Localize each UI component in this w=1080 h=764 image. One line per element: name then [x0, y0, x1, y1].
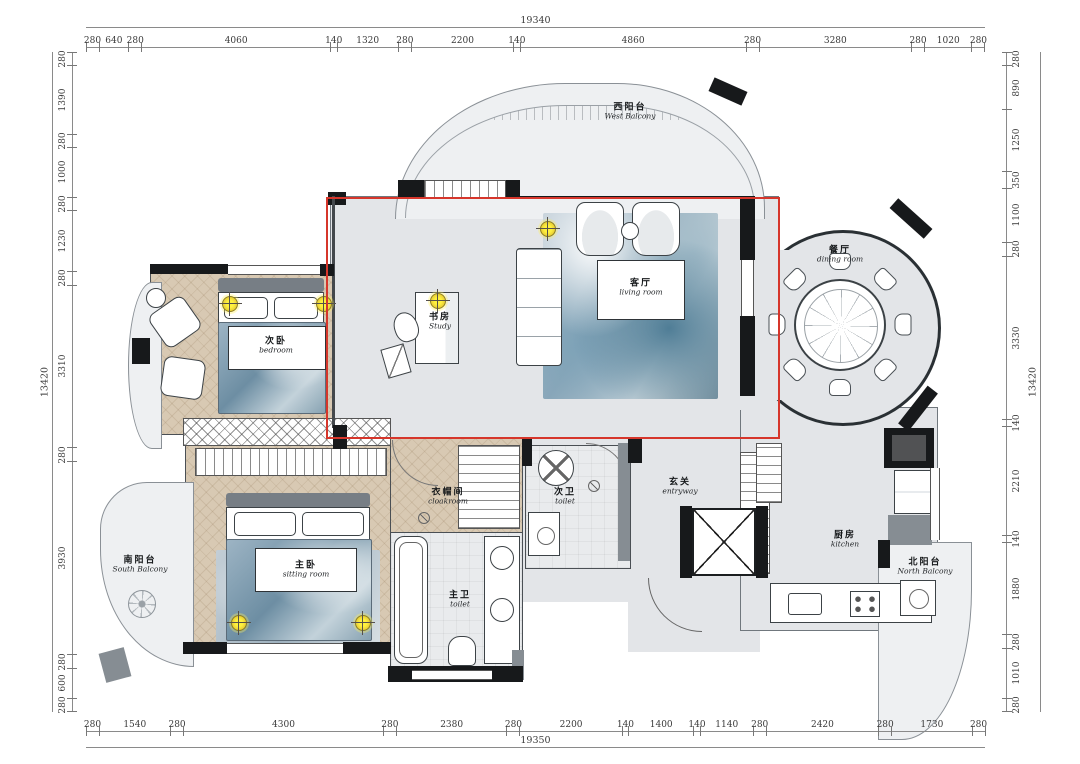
- ceiling-light-symbol: [355, 615, 371, 631]
- floorplan-canvas: 19340 2806402804060140132028022001404860…: [0, 0, 1080, 764]
- dimension-segment: 280: [53, 134, 72, 148]
- dimension-segment: 3330: [1007, 256, 1026, 420]
- dimension-segment: 1010: [1007, 649, 1026, 699]
- dimension-segment: 280: [972, 716, 985, 731]
- bedroom-bed-headboard: [218, 278, 324, 292]
- sink-basin: [490, 598, 514, 622]
- dimension-segments-right: 2808901250350110028033301402210140188028…: [1006, 52, 1026, 712]
- dimension-value: 4060: [225, 36, 248, 46]
- dimension-value: 280: [58, 696, 68, 713]
- dimension-value: 2420: [811, 720, 834, 730]
- dimension-segment: 1100: [1007, 188, 1026, 242]
- elevator-shaft: [692, 508, 756, 576]
- dimension-value: 600: [58, 675, 68, 692]
- dimension-segment: 280: [1007, 52, 1026, 66]
- dimension-segment: 280: [398, 28, 411, 47]
- room-label-kitchen: 厨房 kitchen: [831, 531, 859, 550]
- south-balcony-floor: [100, 482, 194, 667]
- wall-segment: [333, 425, 347, 449]
- dimension-value: 3330: [1012, 327, 1022, 350]
- dimension-segment: 280: [86, 28, 99, 47]
- dimension-value: 1400: [650, 720, 673, 730]
- dimension-segment: 1880: [1007, 542, 1026, 634]
- dimension-segment: 2200: [411, 28, 513, 47]
- plant-icon: [128, 590, 156, 618]
- wall-segment: [740, 196, 755, 260]
- pillow: [274, 297, 318, 319]
- room-label-en: living room: [619, 289, 662, 298]
- master-closet: [195, 448, 387, 476]
- shower-tray: [538, 450, 574, 486]
- dimension-value: 1250: [1012, 129, 1022, 152]
- bathtub: [394, 536, 428, 664]
- wall-segment: [628, 437, 642, 463]
- dimension-segment: 1250: [1007, 110, 1026, 171]
- dimension-value: 2210: [1012, 470, 1022, 493]
- wardrobe-strip: [183, 418, 391, 446]
- dimension-total-right-value: 13420: [1028, 367, 1039, 397]
- dimension-segment: 280: [53, 448, 72, 462]
- dimension-total-left: 13420: [38, 52, 53, 712]
- dimension-segment: 1540: [99, 716, 171, 731]
- dimension-value: 2200: [451, 36, 474, 46]
- ceiling-light-symbol: [316, 296, 332, 312]
- dimension-segment: 3310: [53, 285, 72, 448]
- ceiling-light-symbol: [231, 615, 247, 631]
- sink-bowl: [537, 527, 555, 545]
- dimension-value: 1390: [58, 88, 68, 111]
- dimension-strip-left: 13420 2801390280100028012302803310280393…: [38, 52, 73, 712]
- tv-cabinet-row: [424, 180, 506, 199]
- dimension-value: 350: [1012, 171, 1022, 188]
- dimension-value: 890: [1012, 79, 1022, 96]
- toilet-bowl: [448, 636, 476, 666]
- room-label-dining-room: 餐厅 dining room: [817, 246, 863, 265]
- room-label-south-balcony: 南阳台 South Balcony: [113, 556, 168, 575]
- dimension-segment: 280: [912, 28, 925, 47]
- dining-table-pattern: [804, 289, 878, 363]
- wall-segment: [328, 192, 346, 205]
- side-table: [621, 222, 639, 240]
- dimension-segments-bottom: 2801540280430028023802802200140140014011…: [86, 716, 985, 732]
- room-label-en: North Balcony: [897, 568, 952, 577]
- dimension-segment: 2380: [396, 716, 507, 731]
- dimension-value: 280: [970, 720, 987, 730]
- dimension-segment: 2210: [1007, 427, 1026, 536]
- toilet-sink: [528, 512, 560, 556]
- dimension-segment: 890: [1007, 66, 1026, 110]
- dimension-segment: 280: [1007, 635, 1026, 649]
- dimension-value: 1320: [356, 36, 379, 46]
- dimension-value: 1230: [58, 230, 68, 253]
- dimension-segment: 3280: [759, 28, 911, 47]
- dimension-segment: 140: [1007, 420, 1026, 427]
- dimension-segment: 4860: [520, 28, 746, 47]
- bedroom-top-wall: [150, 264, 228, 274]
- dimension-segment: 280: [1007, 698, 1026, 712]
- wall-segment: [183, 642, 227, 654]
- dimension-total-bottom: 19350: [86, 732, 985, 748]
- dimension-value: 1000: [58, 161, 68, 184]
- wall-segment: [343, 642, 391, 654]
- dimension-segment: 2200: [520, 716, 622, 731]
- dimension-segment: 1320: [337, 28, 398, 47]
- washer-drum: [909, 589, 929, 609]
- dimension-segments-top: 2806402804060140132028022001404860280328…: [86, 28, 985, 48]
- dimension-value: 280: [1012, 696, 1022, 713]
- dimension-segments-left: 2801390280100028012302803310280393028060…: [53, 52, 73, 712]
- room-label-en: West Balcony: [605, 113, 656, 122]
- dimension-segment: 3930: [53, 462, 72, 655]
- dimension-total-top-value: 19340: [520, 15, 550, 26]
- dimension-segment: 280: [507, 716, 520, 731]
- dimension-segment: 280: [746, 28, 759, 47]
- dining-chair: [829, 379, 851, 396]
- round-table: [146, 288, 166, 308]
- room-label-en: toilet: [554, 498, 576, 507]
- dining-chair: [895, 314, 912, 336]
- room-label-en: cloakroom: [428, 498, 468, 507]
- master-bed-headboard: [226, 493, 370, 507]
- dimension-segment: 280: [53, 271, 72, 285]
- wall-segment: [680, 506, 692, 578]
- dimension-segment: 280: [753, 716, 766, 731]
- master-toilet-window: [412, 670, 492, 680]
- dimension-value: 640: [105, 36, 122, 46]
- fridge: [894, 470, 932, 514]
- room-label-west-balcony: 西阳台 West Balcony: [605, 103, 656, 122]
- room-label-en: toilet: [449, 601, 471, 610]
- wall-segment: [740, 316, 755, 396]
- dimension-total-left-value: 13420: [40, 367, 51, 397]
- dining-arc-wall-ne: [890, 198, 933, 238]
- dimension-total-right: 13420: [1026, 52, 1041, 712]
- dimension-total-bottom-value: 19350: [520, 735, 550, 746]
- room-label-en: sitting room: [283, 571, 329, 580]
- dimension-segment: 280: [86, 716, 99, 731]
- shaft-inner: [892, 435, 926, 461]
- armchair: [576, 202, 624, 256]
- dimension-segment: 640: [99, 28, 129, 47]
- wall-segment: [332, 196, 335, 428]
- dimension-value: 3310: [58, 355, 68, 378]
- sink-basin: [490, 546, 514, 570]
- dimension-segment: 600: [53, 669, 72, 699]
- pillow: [302, 512, 364, 536]
- dimension-value: 1730: [920, 720, 943, 730]
- wall-segment: [320, 264, 334, 276]
- dimension-segment: 280: [1007, 242, 1026, 256]
- dimension-total-top: 19340: [86, 12, 985, 28]
- master-bedroom-window: [227, 643, 343, 654]
- room-label-guest-toilet: 次卫 toilet: [554, 488, 576, 507]
- dimension-segment: 4060: [142, 28, 331, 47]
- room-label-cloakroom: 衣帽间 cloakroom: [428, 488, 468, 507]
- dimension-value: 4300: [272, 720, 295, 730]
- dimension-strip-bottom: 2801540280430028023802802200140140014011…: [86, 716, 985, 748]
- dimension-segment: 280: [129, 28, 142, 47]
- dimension-value: 280: [970, 36, 987, 46]
- lounge-chair: [159, 355, 206, 400]
- wall-segment: [132, 338, 150, 364]
- dimension-segment: 280: [972, 28, 985, 47]
- sofa: [516, 248, 562, 366]
- stove: [850, 591, 880, 617]
- dimension-value: 1540: [123, 720, 146, 730]
- room-label-living-room: 客厅 living room: [619, 279, 662, 298]
- dimension-value: 1020: [937, 36, 960, 46]
- dimension-segment: 280: [53, 197, 72, 211]
- dimension-segment: 1730: [892, 716, 972, 731]
- room-label-master-bedroom: 主卧 sitting room: [283, 561, 329, 580]
- kitchen-sink: [788, 593, 822, 615]
- dimension-value: 3280: [824, 36, 847, 46]
- room-label-en: Study: [429, 323, 451, 332]
- dimension-segment: 280: [383, 716, 396, 731]
- dimension-segment: 280: [53, 698, 72, 712]
- bedroom-window: [228, 265, 320, 275]
- wall-segment: [756, 506, 768, 578]
- bathtub-inner: [399, 542, 423, 658]
- dimension-segment: 280: [171, 716, 184, 731]
- dimension-strip-right: 2808901250350110028033301402210140188028…: [1006, 52, 1041, 712]
- entry-shoe-cabinet: [756, 443, 782, 503]
- floor-drain: [418, 512, 430, 524]
- dimension-value: 1880: [1012, 577, 1022, 600]
- wall-segment: [878, 540, 890, 568]
- dimension-segment: 1140: [700, 716, 753, 731]
- wall-segment: [522, 438, 532, 466]
- room-label-north-balcony: 北阳台 North Balcony: [897, 558, 952, 577]
- wall-segment: [518, 196, 742, 199]
- kitchen-gray-wall: [888, 515, 932, 545]
- ceiling-light-symbol: [430, 293, 446, 309]
- floor-drain: [588, 480, 600, 492]
- dimension-value: 1010: [1012, 662, 1022, 685]
- room-label-study: 书房 Study: [429, 313, 451, 332]
- dimension-segment: 140: [1007, 535, 1026, 542]
- dimension-value: 2200: [560, 720, 583, 730]
- dimension-segment: 280: [53, 655, 72, 669]
- ceiling-light-symbol: [222, 296, 238, 312]
- pillow: [234, 512, 296, 536]
- kitchen-window: [930, 468, 940, 540]
- ceiling-light-symbol: [540, 221, 556, 237]
- dimension-segment: 1400: [629, 716, 694, 731]
- dimension-segment: 1020: [925, 28, 972, 47]
- dining-chair: [769, 314, 786, 336]
- dimension-segment: 2420: [766, 716, 878, 731]
- dimension-segment: 280: [53, 52, 72, 66]
- room-label-en: South Balcony: [113, 566, 168, 575]
- dimension-value: 4860: [622, 36, 645, 46]
- room-label-en: kitchen: [831, 541, 859, 550]
- living-cabinet-niche: [741, 260, 754, 316]
- dimension-value: 1100: [1012, 204, 1022, 227]
- dimension-segment: 1230: [53, 211, 72, 271]
- dimension-segment: 4300: [184, 716, 384, 731]
- kitchen-shaft: [884, 428, 934, 468]
- gray-wall: [99, 647, 132, 683]
- room-label-en: bedroom: [259, 347, 293, 356]
- dimension-segment: 1000: [53, 148, 72, 197]
- washing-machine: [900, 580, 936, 616]
- dimension-value: 1140: [715, 720, 738, 730]
- room-label-entryway: 玄关 entryway: [662, 478, 697, 497]
- wall-segment: [398, 180, 424, 199]
- dimension-value: 3930: [58, 547, 68, 570]
- room-label-bedroom: 次卧 bedroom: [259, 337, 293, 356]
- room-label-master-toilet: 主卫 toilet: [449, 591, 471, 610]
- plan-area: 西阳台 West Balcony 餐厅 dining room 客厅 livin…: [88, 50, 988, 715]
- dimension-segment: 350: [1007, 171, 1026, 188]
- dimension-value: 2380: [440, 720, 463, 730]
- dimension-strip-top: 19340 2806402804060140132028022001404860…: [86, 12, 985, 48]
- west-balcony-end-wall: [709, 77, 748, 105]
- armchair: [632, 202, 680, 256]
- room-label-en: dining room: [817, 256, 863, 265]
- dimension-segment: 1390: [53, 66, 72, 134]
- dimension-segment: 280: [879, 716, 892, 731]
- room-label-en: entryway: [662, 488, 697, 497]
